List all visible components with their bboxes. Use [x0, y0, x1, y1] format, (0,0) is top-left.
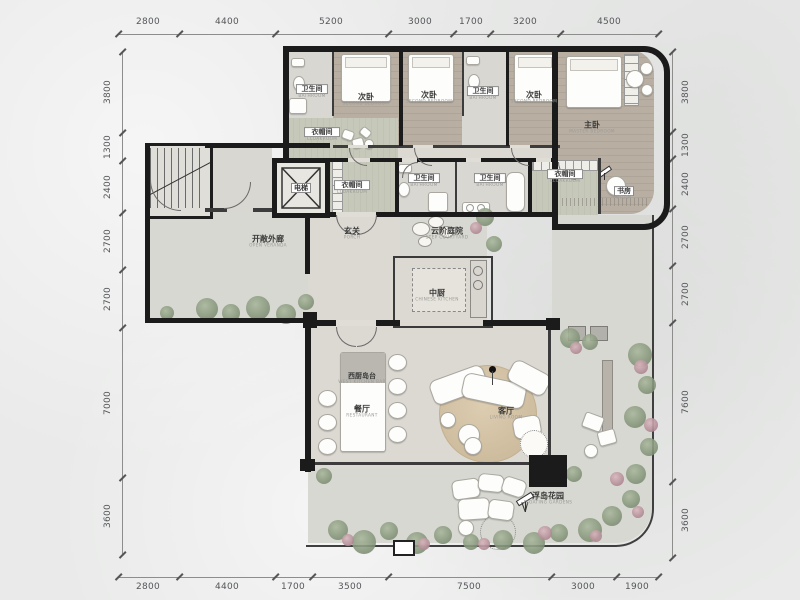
dim-label-left-3: 2700	[103, 229, 113, 253]
dim-label-bottom-4: 7500	[457, 582, 481, 592]
dim-label-left-6: 3600	[103, 504, 113, 528]
dim-tick	[668, 554, 675, 561]
dim-label-top-6: 4500	[597, 17, 621, 27]
room-label-living: 客厅 LIVING ROOM	[487, 407, 525, 422]
room-label-bathroom-1: 卫生间 BATHROOM	[296, 84, 328, 100]
dim-label-bottom-5: 3000	[571, 582, 595, 592]
dim-tick	[118, 551, 125, 558]
dim-label-right-0: 3800	[681, 80, 691, 104]
dim-line-left	[122, 52, 123, 555]
room-label-porch: 玄关 PORCH	[342, 227, 361, 242]
dim-label-right-2: 2400	[681, 172, 691, 196]
dim-label-top-4: 1700	[459, 17, 483, 27]
room-label-west-kitchen-island: 西厨岛台 WEST KITCHEN BAR	[334, 372, 390, 386]
dim-label-bottom-0: 2800	[136, 582, 160, 592]
dim-label-bottom-3: 3500	[338, 582, 362, 592]
dim-label-left-0: 3800	[103, 80, 113, 104]
dim-label-top-2: 5200	[319, 17, 343, 27]
dim-label-left-4: 2700	[103, 287, 113, 311]
room-label-dining: 餐厅 RESTAURANT	[343, 405, 380, 420]
dim-label-bottom-6: 1900	[625, 582, 649, 592]
dim-label-left-2: 2400	[103, 175, 113, 199]
room-label-open-veranda: 开敞外廊 OPEN VERANDA	[246, 235, 290, 250]
room-label-cloakroom-2: 衣帽间 CLOAKROOM	[334, 180, 370, 196]
room-label-bedroom-1: 次卧 SECOND BEDROOM	[339, 93, 394, 108]
room-label-bedroom-2: 次卧 SECOND BEDROOM	[402, 91, 457, 106]
room-label-floating-garden: 浮岛花园 FLOATING GARDENS	[519, 492, 576, 507]
dim-label-bottom-1: 4400	[215, 582, 239, 592]
room-label-master-bedroom: 主卧 MASTER BEDROOM	[565, 121, 619, 136]
dim-label-top-5: 3200	[513, 17, 537, 27]
room-label-elevator: 电梯	[291, 183, 311, 193]
dim-label-top-1: 4400	[215, 17, 239, 27]
room-label-bathroom-3: 卫生间 BATHROOM	[408, 173, 440, 189]
dim-label-top-0: 2800	[136, 17, 160, 27]
dim-label-top-3: 3000	[408, 17, 432, 27]
room-label-bathroom-4: 卫生间 BATHROOM	[474, 173, 506, 189]
room-label-study: 书房 STUDY	[614, 186, 634, 202]
room-label-chinese-kitchen: 中厨 CHINESE KITCHEN	[411, 289, 462, 304]
dim-tick	[654, 30, 661, 37]
room-label-step-courtyard: 云阶庭院 STEP COURTYARD	[422, 227, 472, 242]
garden-gate	[393, 540, 415, 556]
dim-label-right-4: 2700	[681, 282, 691, 306]
room-label-cloakroom-1: 衣帽间 CLOAKROOM	[304, 127, 340, 143]
room-label-cloakroom-3: 衣帽间 CLOAKROOM	[547, 169, 583, 185]
dim-label-right-6: 3600	[681, 508, 691, 532]
room-label-bedroom-3: 次卧 SECOND BEDROOM	[507, 91, 562, 106]
floor-plan: 卫生间 BATHROOM 次卧 SECOND BEDROOM 次卧 SECOND…	[0, 0, 800, 600]
dim-tick	[654, 573, 661, 580]
bathtub	[506, 172, 525, 212]
room-label-bathroom-2: 卫生间 BATHROOM	[467, 86, 499, 102]
master-suite-outline	[552, 46, 670, 230]
dim-label-right-3: 2700	[681, 225, 691, 249]
dim-label-right-1: 1300	[681, 133, 691, 157]
dim-label-right-5: 7600	[681, 390, 691, 414]
dim-label-left-1: 1300	[103, 135, 113, 159]
dining-island	[340, 352, 386, 452]
dim-label-bottom-2: 1700	[281, 582, 305, 592]
dim-label-left-5: 7000	[103, 391, 113, 415]
